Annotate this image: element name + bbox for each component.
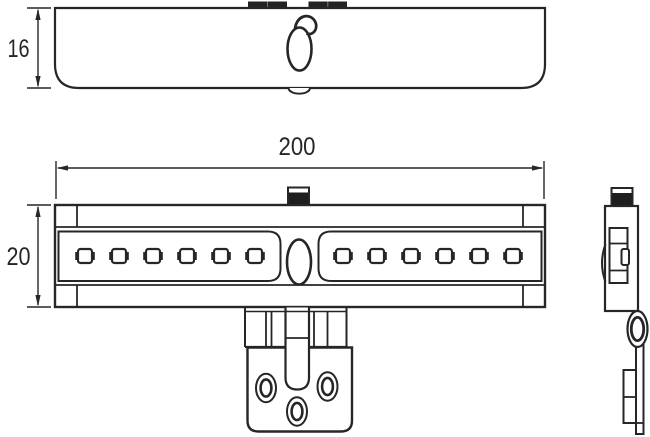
led-icon — [177, 249, 197, 263]
dim-length-label: 200 — [279, 133, 316, 161]
led-icon — [401, 249, 421, 263]
sensor-button-side — [622, 249, 630, 265]
hinge-eyelet-icon — [628, 311, 648, 347]
dim-depth-label: 16 — [8, 35, 30, 63]
led-icon — [503, 249, 523, 263]
led-icon — [435, 249, 455, 263]
mounting-clip-front — [288, 188, 309, 206]
led-icon — [143, 249, 163, 263]
led-icon — [75, 249, 95, 263]
technical-drawing: 16 200 — [0, 0, 650, 437]
bracket-strap-side — [636, 345, 644, 434]
sensor-button-front — [287, 240, 311, 285]
screw-hole-icon — [287, 397, 307, 425]
led-icon — [109, 249, 129, 263]
led-icon — [367, 249, 387, 263]
screw-hole-icon — [318, 372, 338, 400]
technical-drawing-page: 16 200 — [0, 0, 650, 437]
led-icon — [245, 249, 265, 263]
mounting-clip-side — [612, 188, 633, 206]
top-view — [55, 2, 545, 94]
dim-height-label: 20 — [7, 243, 31, 271]
hinge-tongue — [286, 308, 310, 390]
led-icon — [469, 249, 489, 263]
led-icon — [333, 249, 353, 263]
front-view — [55, 188, 545, 308]
knob-front-bump — [289, 88, 311, 94]
led-icon — [211, 249, 231, 263]
screw-hole-icon — [256, 374, 276, 402]
